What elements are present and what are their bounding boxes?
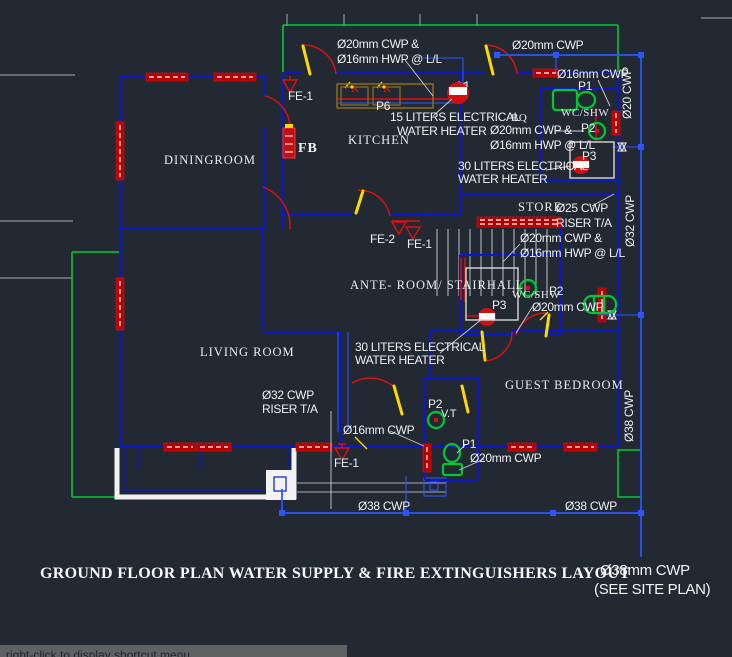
label-ante-room: ANTE- ROOM/ STAIRHALL xyxy=(350,278,524,292)
label-fe1-mid: FE-1 xyxy=(407,237,432,251)
label-cwp20-bottom: Ø20mm CWP xyxy=(470,451,542,465)
label-guest-bedroom: GUEST BEDROOM xyxy=(505,378,624,392)
label-mid-supply-1: Ø20mm CWP & xyxy=(520,231,602,245)
label-kitchen: KITCHEN xyxy=(348,133,410,147)
label-living-room: LIVING ROOM xyxy=(200,345,295,359)
label-fb: FB xyxy=(298,141,318,156)
floor-plan-drawing: Ø20mm CWP & Ø16mm HWP @ L/L Ø20mm CWP Ø1… xyxy=(0,0,732,657)
label-bq-supply-1: Ø20mm CWP & xyxy=(490,123,572,137)
drawing-title: GROUND FLOOR PLAN WATER SUPPLY & FIRE EX… xyxy=(40,565,630,582)
label-fe1-top: FE-1 xyxy=(288,89,313,103)
label-cwp20-top: Ø20mm CWP xyxy=(512,38,584,52)
label-diningroom: DININGROOM xyxy=(164,153,256,167)
site-note-2: (SEE SITE PLAN) xyxy=(594,581,711,598)
label-p1-bottom: P1 xyxy=(462,437,477,451)
label-fe1-bottom: FE-1 xyxy=(334,456,359,470)
label-v-cwp38: Ø38 CWP xyxy=(622,390,636,442)
status-hint-text: right-click to display shortcut menu xyxy=(0,648,347,657)
label-heater30r-2: WATER HEATER xyxy=(458,172,548,186)
label-cwp38-a: Ø38 CWP xyxy=(358,499,410,513)
label-supply-top-1: Ø20mm CWP & xyxy=(337,37,419,51)
label-bq-supply-2: Ø16mm HWP @ L/L xyxy=(490,138,595,152)
label-p2-top: P2 xyxy=(581,121,596,135)
fire-blanket-icon xyxy=(283,124,295,158)
label-p3-mid: P3 xyxy=(492,298,507,312)
label-cwp25-2: RISER T/A xyxy=(556,216,612,230)
label-fe2: FE-2 xyxy=(370,232,395,246)
label-cwp25-1: Ø25 CWP xyxy=(556,201,608,215)
label-heater30m-1: 30 LITERS ELECTRICAL xyxy=(355,340,486,354)
toilet-p1-bottom-icon xyxy=(443,444,462,475)
label-v-cwp32: Ø32 CWP xyxy=(623,195,637,247)
label-heater30r-1: 30 LITERS ELECTRICAL xyxy=(458,159,589,173)
label-wc-top: WC/SHW xyxy=(561,107,609,119)
label-vt: V.T xyxy=(441,408,457,420)
label-p2-mid: P2 xyxy=(549,284,564,298)
label-supply-top-2: Ø16mm HWP @ L/L xyxy=(337,52,442,66)
label-mid-supply-2: Ø16mm HWP @ L/L xyxy=(520,246,625,260)
label-heater15-1: 15 LITERS ELECTRICAL xyxy=(390,110,521,124)
label-v-cwp20: Ø20 CWP xyxy=(620,67,634,119)
label-cwp32-riser-1: Ø32 CWP xyxy=(262,388,314,402)
label-cwp16-bottom: Ø16mm CWP xyxy=(343,423,415,437)
label-cwp20-mid: Ø20mm CWP xyxy=(532,300,604,314)
label-cwp38-b: Ø38 CWP xyxy=(565,499,617,513)
cad-canvas: Ø20mm CWP & Ø16mm HWP @ L/L Ø20mm CWP Ø1… xyxy=(0,0,732,657)
label-p6: P6 xyxy=(376,99,391,113)
label-heater15-2: WATER HEATER xyxy=(397,124,487,138)
label-heater30m-2: WATER HEATER xyxy=(355,353,445,367)
label-cwp32-riser-2: RISER T/A xyxy=(262,402,318,416)
label-cwp16-topright: Ø16mm CWP xyxy=(557,67,629,81)
status-bar[interactable]: right-click to display shortcut menu xyxy=(0,645,347,657)
label-p1-top: P1 xyxy=(578,79,593,93)
